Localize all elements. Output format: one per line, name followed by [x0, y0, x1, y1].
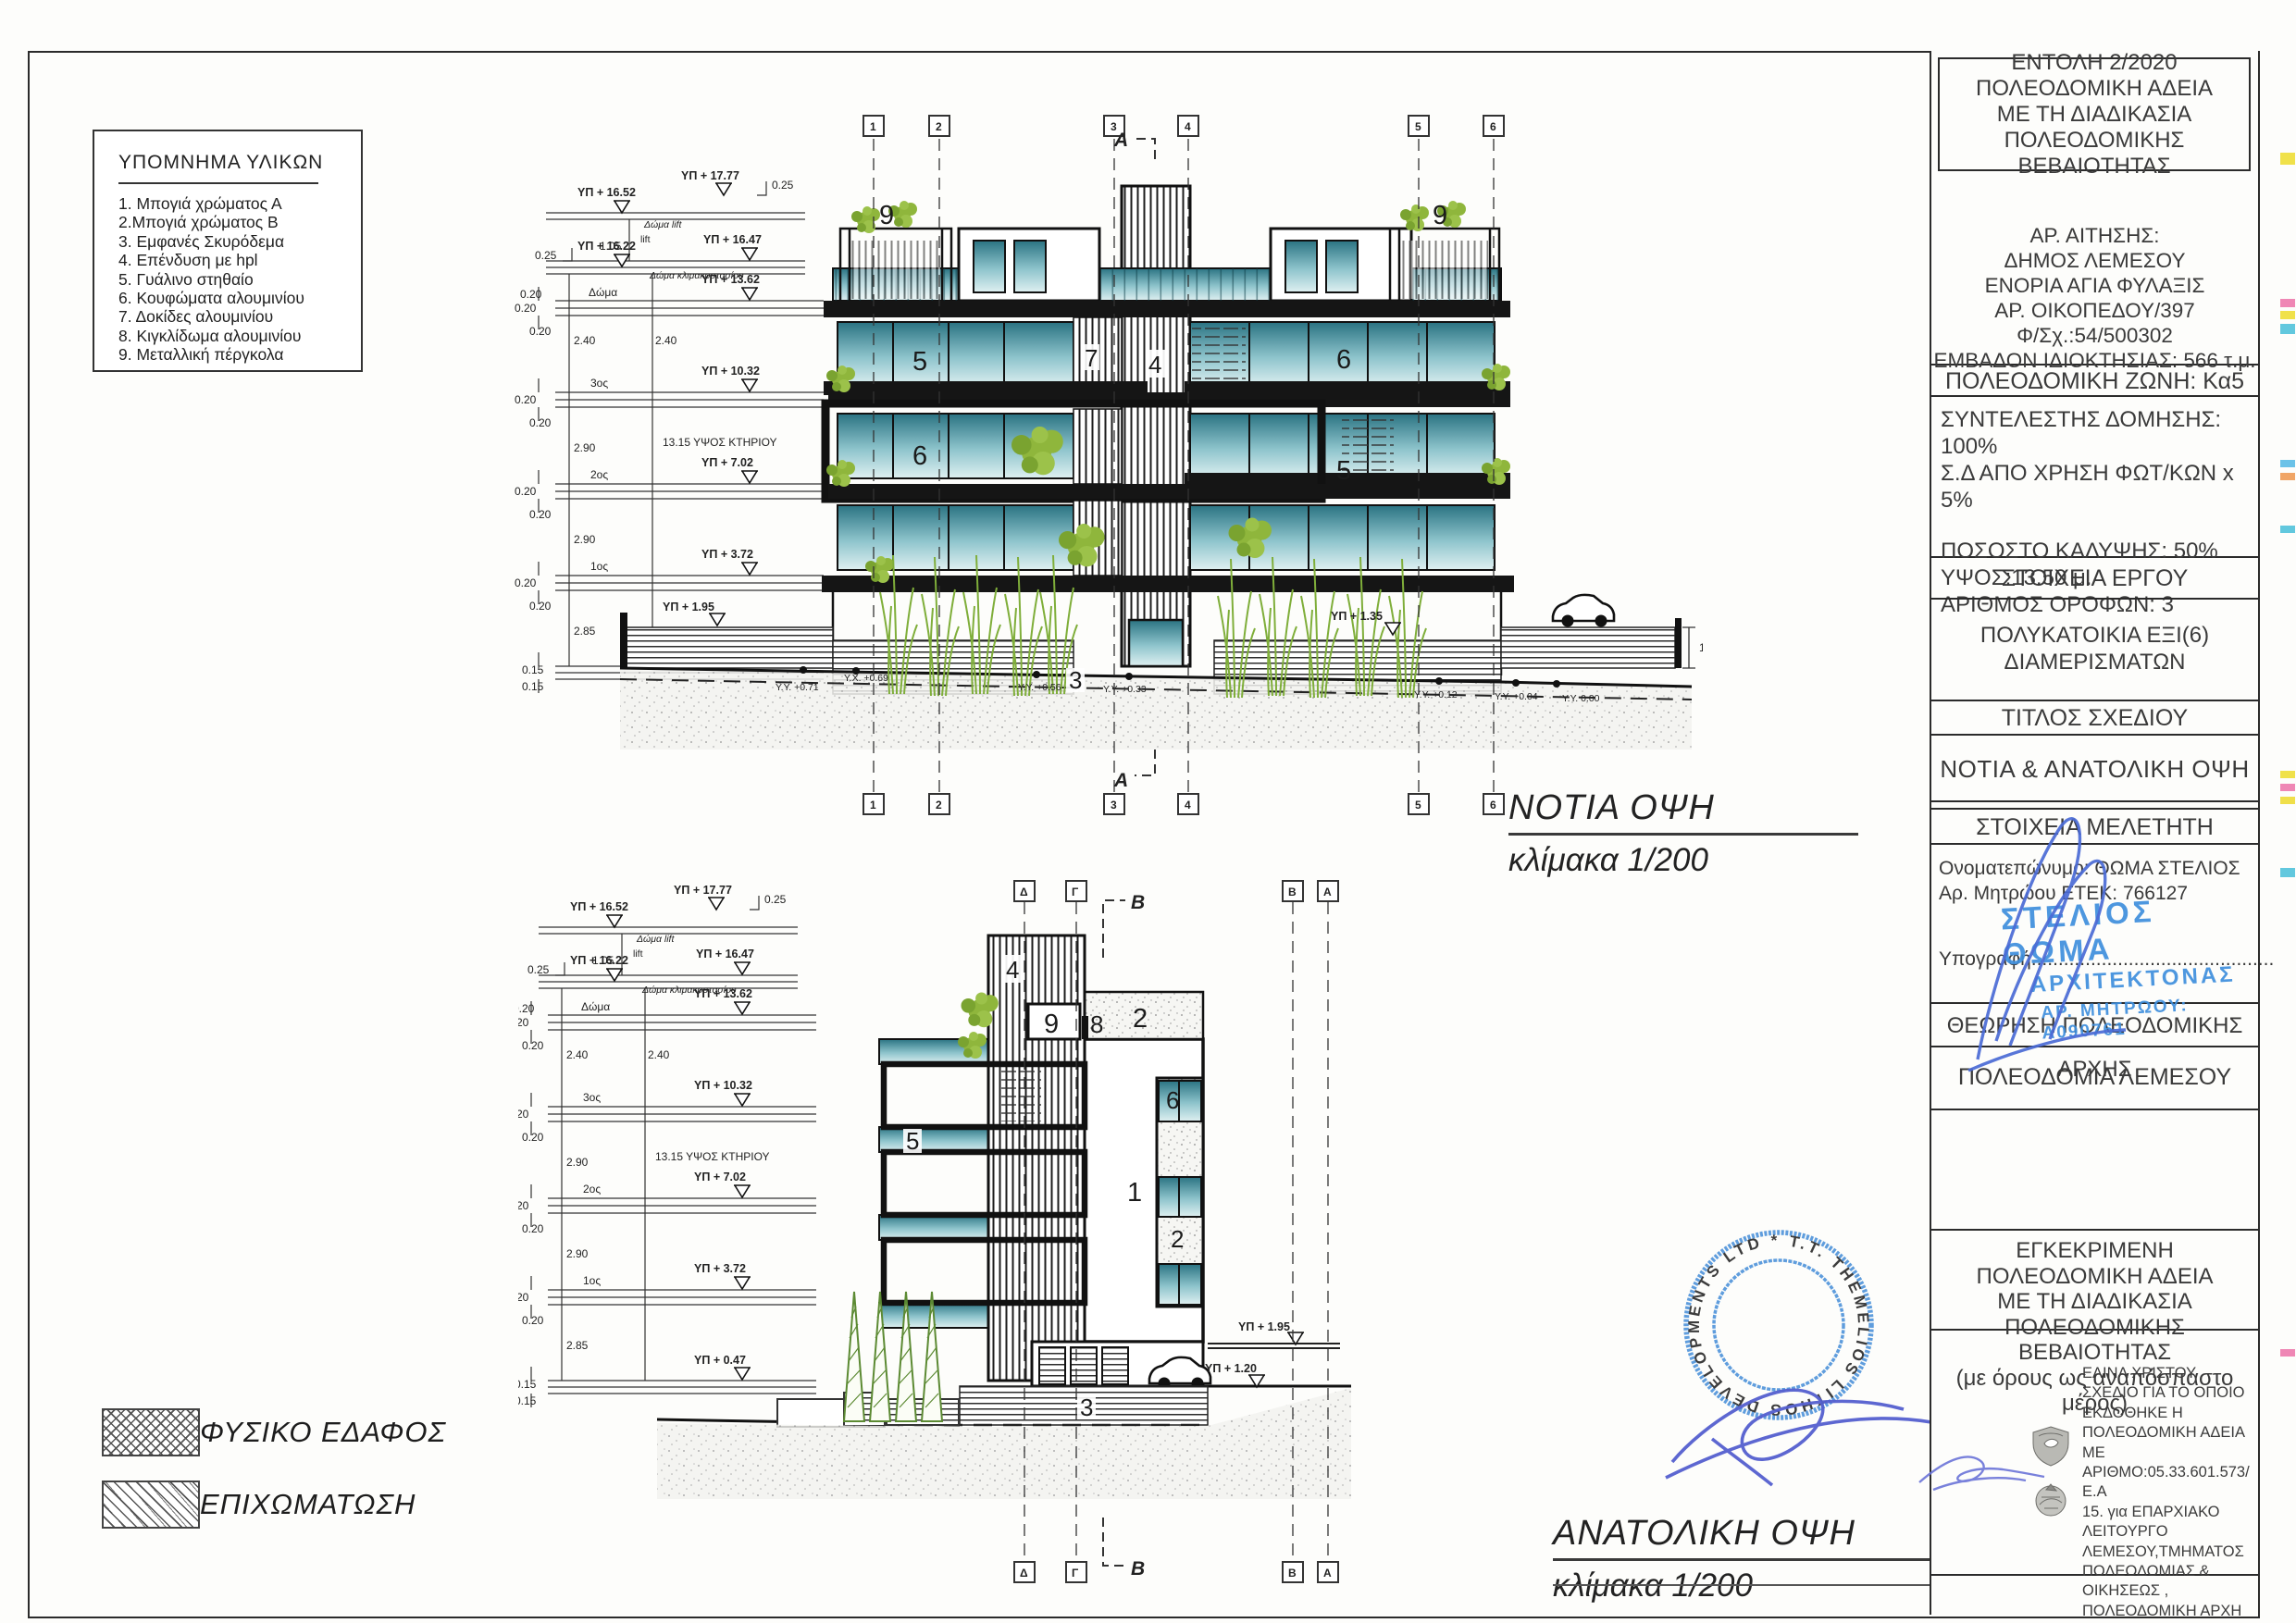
permit-line: ΕΝΤΟΛΗ 2/2020	[1940, 50, 2249, 76]
svg-text:2.90: 2.90	[574, 441, 596, 454]
svg-text:3: 3	[1080, 1394, 1093, 1421]
ds-line: ΣΧΕΔΙΟ ΓΙΑ ΤΟ ΟΠΟΙΟ	[2082, 1383, 2254, 1403]
application-line: Φ/Σχ.:54/500302	[1931, 323, 2258, 348]
planning-zone: ΠΟΛΕΟΔΟΜΙΚΗ ΖΩΝΗ: Κα5	[1931, 365, 2258, 397]
ds-line: ΛΕΙΤΟΥΡΓΟ	[2082, 1522, 2254, 1542]
application-info: ΑΡ. ΑΙΤΗΣΗΣ: ΔΗΜΟΣ ΛΕΜΕΣΟΥ ΕΝΟΡΙΑ ΑΓΙΑ Φ…	[1931, 171, 2258, 365]
svg-text:Υ.Υ. +0.12: Υ.Υ. +0.12	[1414, 689, 1458, 700]
svg-text:4: 4	[1148, 351, 1161, 378]
title-block: ΕΝΤΟΛΗ 2/2020 ΠΟΛΕΟΔΟΜΙΚΗ ΑΔΕΙΑ ΜΕ ΤΗ ΔΙ…	[1930, 51, 2258, 1615]
svg-text:ΥΠ + 16.52: ΥΠ + 16.52	[577, 186, 636, 199]
svg-text:lift: lift	[640, 234, 651, 245]
svg-text:0.20: 0.20	[515, 393, 537, 406]
svg-text:13.15 ΥΨΟΣ ΚΤΗΡΙΟΥ: 13.15 ΥΨΟΣ ΚΤΗΡΙΟΥ	[663, 436, 777, 449]
svg-text:1ος: 1ος	[590, 560, 608, 573]
svg-text:Α: Α	[1323, 886, 1332, 898]
svg-text:0.20: 0.20	[529, 416, 552, 429]
svg-text:0.25: 0.25	[535, 249, 557, 262]
svg-text:B: B	[1131, 892, 1145, 913]
designer-signature	[1941, 810, 2144, 1078]
svg-text:8: 8	[1090, 1010, 1103, 1038]
legend-item: 5. Γυάλινο στηθαίο	[118, 270, 361, 289]
application-line: ΑΡ. ΟΙΚΟΠΕΔΟΥ/397	[1931, 298, 2258, 323]
svg-text:Υ.Υ. +0.04: Υ.Υ. +0.04	[1495, 691, 1538, 702]
svg-text:2: 2	[1171, 1225, 1184, 1253]
svg-text:0.20: 0.20	[515, 302, 537, 315]
contractor-signature	[1666, 1390, 1931, 1485]
svg-text:ΥΠ + 1.20: ΥΠ + 1.20	[1205, 1362, 1257, 1375]
svg-text:Υ.Υ. +0.56: Υ.Υ. +0.56	[1018, 682, 1061, 693]
official-signature	[1915, 1434, 2049, 1499]
svg-text:5: 5	[1415, 799, 1421, 811]
svg-text:5: 5	[1415, 120, 1421, 133]
east-title-rule	[1553, 1558, 1930, 1561]
fill-ground-label: ΕΠΙΧΩΜΑΤΩΣΗ	[200, 1488, 416, 1521]
svg-text:9: 9	[879, 201, 894, 230]
legend-item: 3. Εμφανές Σκυρόδεμα	[118, 232, 361, 251]
svg-text:6: 6	[1490, 120, 1496, 133]
svg-text:9: 9	[1044, 1010, 1059, 1039]
svg-text:5: 5	[912, 347, 927, 377]
natural-ground-label: ΦΥΣΙΚΟ ΕΔΑΦΟΣ	[200, 1416, 446, 1449]
svg-text:2.85: 2.85	[574, 625, 596, 638]
svg-text:6: 6	[912, 441, 927, 471]
east-building	[657, 935, 1351, 1499]
application-line: ΔΗΜΟΣ ΛΕΜΕΣΟΥ	[1931, 248, 2258, 273]
svg-text:A: A	[1113, 770, 1128, 791]
approved-permit-note: ΕΓΚΕΚΡΙΜΕΝΗ ΠΟΛΕΟΔΟΜΙΚΗ ΑΔΕΙΑ ΜΕ ΤΗ ΔΙΑΔ…	[1931, 1231, 2258, 1331]
svg-text:A: A	[1113, 130, 1128, 151]
svg-text:0.25: 0.25	[772, 179, 794, 192]
ds-line: ΕΛΙΝΑ ΧΡΙΣΤΟΥ	[2082, 1364, 2254, 1383]
ds-line: ΠΟΛΕΟΔΟΜΙΑΣ &	[2082, 1562, 2254, 1581]
approved-line: ΕΓΚΕΚΡΙΜΕΝΗ ΠΟΛΕΟΔΟΜΙΚΗ ΑΔΕΙΑ	[1931, 1238, 2258, 1289]
east-caption: ΑΝΑΤΟΛΙΚΗ ΟΨΗ κλίμακα 1/200	[1553, 1514, 1930, 1604]
svg-text:2.40: 2.40	[655, 334, 677, 347]
project-line: ΔΙΑΜΕΡΙΣΜΑΤΩΝ	[1931, 649, 2258, 675]
svg-text:Υ.Χ. +0.69: Υ.Χ. +0.69	[844, 673, 888, 684]
svg-text:3: 3	[1069, 666, 1082, 694]
level-dimension-column: ΥΠ + 16.52 ΥΠ + 17.77 Δώμα lift ΥΠ + 16.…	[515, 169, 824, 693]
svg-text:ΥΠ + 1.35: ΥΠ + 1.35	[1331, 610, 1383, 623]
empty-approval-box	[1931, 1110, 2258, 1231]
svg-text:1.05: 1.05	[600, 240, 622, 253]
svg-text:0.15: 0.15	[522, 663, 544, 676]
contractor-stamp: T.T. THEMELIOS LITHOS DEVELOPMENTS LTD *	[1661, 1208, 1939, 1522]
ds-line: 15. για ΕΠΑΡΧΙΑΚΟ	[2082, 1503, 2254, 1522]
ds-line: ΕΚΔΟΘΗΚΕ Η	[2082, 1404, 2254, 1423]
svg-text:Β: Β	[1288, 886, 1297, 898]
svg-text:4: 4	[1006, 956, 1019, 984]
svg-text:B: B	[1131, 1558, 1145, 1580]
svg-text:2: 2	[936, 120, 942, 133]
svg-text:Γ: Γ	[1072, 886, 1079, 898]
svg-text:Δώμα lift: Δώμα lift	[643, 219, 682, 230]
svg-text:0.20: 0.20	[529, 508, 552, 521]
svg-text:ΥΠ + 1.95: ΥΠ + 1.95	[1238, 1320, 1290, 1333]
coefficients: ΣΥΝΤΕΛΕΣΤΗΣ ΔΟΜΗΣΗΣ: 100% Σ.Δ ΑΠΟ ΧΡΗΣΗ …	[1931, 397, 2258, 558]
svg-text:ΥΠ + 16.47: ΥΠ + 16.47	[703, 233, 762, 246]
ds-line: ΛΕΜΕΣΟΥ,ΤΜΗΜΑΤΟΣ	[2082, 1542, 2254, 1562]
permit-order-box: ΕΝΤΟΛΗ 2/2020 ΠΟΛΕΟΔΟΜΙΚΗ ΑΔΕΙΑ ΜΕ ΤΗ ΔΙ…	[1938, 57, 2251, 171]
digital-signature-text: ΕΛΙΝΑ ΧΡΙΣΤΟΥ ΣΧΕΔΙΟ ΓΙΑ ΤΟ ΟΠΟΙΟ ΕΚΔΟΘΗ…	[2082, 1364, 2254, 1623]
drawing-sheet: ΥΠΟΜΝΗΜΑ ΥΛΙΚΩΝ 1. Μπογιά χρώματος Α 2.Μ…	[0, 0, 2296, 1623]
svg-text:4: 4	[1185, 120, 1191, 133]
svg-text:Δώμα: Δώμα	[589, 286, 617, 299]
east-scale: κλίμακα 1/200	[1553, 1567, 1930, 1604]
svg-text:0.20: 0.20	[520, 288, 542, 301]
south-elevation-drawing: ΥΠ + 16.52 ΥΠ + 17.77 Δώμα lift ΥΠ + 16.…	[481, 102, 1703, 870]
digital-signature-box: ΕΛΙΝΑ ΧΡΙΣΤΟΥ ΣΧΕΔΙΟ ΓΙΑ ΤΟ ΟΠΟΙΟ ΕΚΔΟΘΗ…	[1931, 1331, 2258, 1576]
legend-item: 8. Κιγκλίδωμα αλουμινίου	[118, 327, 361, 345]
application-line: ΕΝΟΡΙΑ ΑΓΙΑ ΦΥΛΑΞΙΣ	[1931, 273, 2258, 298]
svg-text:Υ.Υ. +0.33: Υ.Υ. +0.33	[1103, 684, 1147, 695]
svg-text:1: 1	[870, 120, 876, 133]
legend-item: 6. Κουφώματα αλουμινίου	[118, 289, 361, 307]
ds-line: ΑΡΙΘΜΟ:05.33.601.573/Ε.Α	[2082, 1463, 2254, 1503]
svg-text:6: 6	[1166, 1086, 1179, 1114]
legend-item: 1. Μπογιά χρώματος Α	[118, 194, 361, 213]
east-elevation-drawing: 4 9 8 2 5 6 1 2 3 ΥΠ + 1.95 ΥΠ + 1.20	[518, 870, 1444, 1623]
natural-ground-swatch	[102, 1408, 200, 1456]
svg-text:6: 6	[1336, 345, 1351, 375]
materials-legend: ΥΠΟΜΝΗΜΑ ΥΛΙΚΩΝ 1. Μπογιά χρώματος Α 2.Μ…	[93, 130, 363, 372]
svg-text:4: 4	[1185, 799, 1191, 811]
legend-item: 2.Μπογιά χρώματος Β	[118, 213, 361, 231]
ds-line: ΠΟΛΕΟΔΟΜΙΚΗ ΑΔΕΙΑ ΜΕ	[2082, 1423, 2254, 1463]
project-line: ΠΟΛΥΚΑΤΟΙΚΙΑ ΕΞΙ(6)	[1931, 622, 2258, 649]
south-title: ΝΟΤΙΑ ΟΨΗ	[1508, 788, 1858, 828]
svg-text:Δ: Δ	[1020, 886, 1028, 898]
svg-text:9: 9	[1433, 201, 1447, 230]
svg-text:7: 7	[1085, 344, 1098, 372]
south-caption: ΝΟΤΙΑ ΟΨΗ κλίμακα 1/200	[1508, 788, 1858, 879]
svg-text:Γ: Γ	[1072, 1567, 1079, 1580]
project-description: ΠΟΛΥΚΑΤΟΙΚΙΑ ΕΞΙ(6) ΔΙΑΜΕΡΙΣΜΑΤΩΝ	[1931, 600, 2258, 701]
svg-text:5: 5	[1336, 456, 1351, 486]
svg-text:0.20: 0.20	[529, 325, 552, 338]
legend-item: 9. Μεταλλική πέργκολα	[118, 345, 361, 364]
drawing-title-header: ΤΙΤΛΟΣ ΣΧΕΔΙΟΥ	[1931, 701, 2258, 736]
south-scale: κλίμακα 1/200	[1508, 842, 1858, 879]
permit-line: ΜΕ ΤΗ ΔΙΑΔΙΚΑΣΙΑ ΠΟΛΕΟΔΟΜΙΚΗΣ	[1940, 102, 2249, 154]
legend-item: 4. Επένδυση με hpl	[118, 251, 361, 269]
permit-line: ΠΟΛΕΟΔΟΜΙΚΗ ΑΔΕΙΑ	[1940, 76, 2249, 102]
svg-text:2.40: 2.40	[574, 334, 596, 347]
divider-line	[1553, 1584, 1960, 1586]
svg-text:0.20: 0.20	[515, 576, 537, 589]
svg-text:0.20: 0.20	[529, 600, 552, 613]
svg-text:ΥΠ + 17.77: ΥΠ + 17.77	[681, 169, 739, 182]
east-ground-levels: ΥΠ + 1.95 ΥΠ + 1.20	[1205, 1320, 1304, 1387]
fill-ground-swatch	[102, 1481, 200, 1529]
svg-text:3ος: 3ος	[590, 377, 608, 390]
ds-line: ΟΙΚΗΣΕΩΣ ,	[2082, 1581, 2254, 1601]
ds-line: ΠΟΛΕΟΔΟΜΙΚΗ ΑΡΧΗ	[2082, 1602, 2254, 1621]
svg-text:1: 1	[870, 799, 876, 811]
svg-text:2.90: 2.90	[574, 533, 596, 546]
svg-text:ΥΠ + 10.32: ΥΠ + 10.32	[701, 365, 760, 378]
application-line: ΑΡ. ΑΙΤΗΣΗΣ:	[1931, 223, 2258, 248]
svg-text:Υ.Υ. +0.71: Υ.Υ. +0.71	[776, 682, 819, 693]
svg-text:Β: Β	[1288, 1567, 1297, 1580]
svg-text:Υ.Υ. 0.00: Υ.Υ. 0.00	[1562, 693, 1600, 704]
svg-text:1: 1	[1127, 1178, 1142, 1208]
legend-rule	[118, 182, 318, 184]
svg-text:Α: Α	[1323, 1567, 1332, 1580]
drawing-title: ΝΟΤΙΑ & ΑΝΑΤΟΛΙΚΗ ΟΨΗ	[1931, 736, 2258, 802]
svg-text:6: 6	[1490, 799, 1496, 811]
svg-text:2ος: 2ος	[590, 468, 608, 481]
south-building	[620, 186, 1695, 750]
materials-legend-title: ΥΠΟΜΝΗΜΑ ΥΛΙΚΩΝ	[118, 152, 361, 174]
svg-text:ΥΠ + 13.62: ΥΠ + 13.62	[701, 273, 760, 286]
svg-text:2: 2	[936, 799, 942, 811]
svg-text:2: 2	[1133, 1004, 1148, 1034]
legend-item: 7. Δοκίδες αλουμινίου	[118, 307, 361, 326]
svg-text:3: 3	[1111, 799, 1117, 811]
svg-text:Δ: Δ	[1020, 1567, 1028, 1580]
svg-text:0.15: 0.15	[522, 680, 544, 693]
svg-text:0.20: 0.20	[515, 485, 537, 498]
svg-text:ΥΠ + 3.72: ΥΠ + 3.72	[701, 548, 753, 561]
coefficient-line: Σ.Δ ΑΠΟ ΧΡΗΣΗ ΦΩΤ/ΚΩΝ x 5%	[1941, 460, 2258, 514]
svg-text:5: 5	[906, 1127, 919, 1155]
svg-text:1.20: 1.20	[1699, 641, 1703, 654]
svg-text:ΥΠ + 7.02: ΥΠ + 7.02	[701, 456, 753, 469]
coefficient-line: ΣΥΝΤΕΛΕΣΤΗΣ ΔΟΜΗΣΗΣ: 100%	[1941, 406, 2258, 460]
svg-text:ΥΠ + 1.95: ΥΠ + 1.95	[663, 601, 714, 613]
project-header: ΣΤΟΙΧΕΙΑ ΕΡΓΟΥ	[1931, 558, 2258, 600]
south-title-rule	[1508, 833, 1858, 836]
